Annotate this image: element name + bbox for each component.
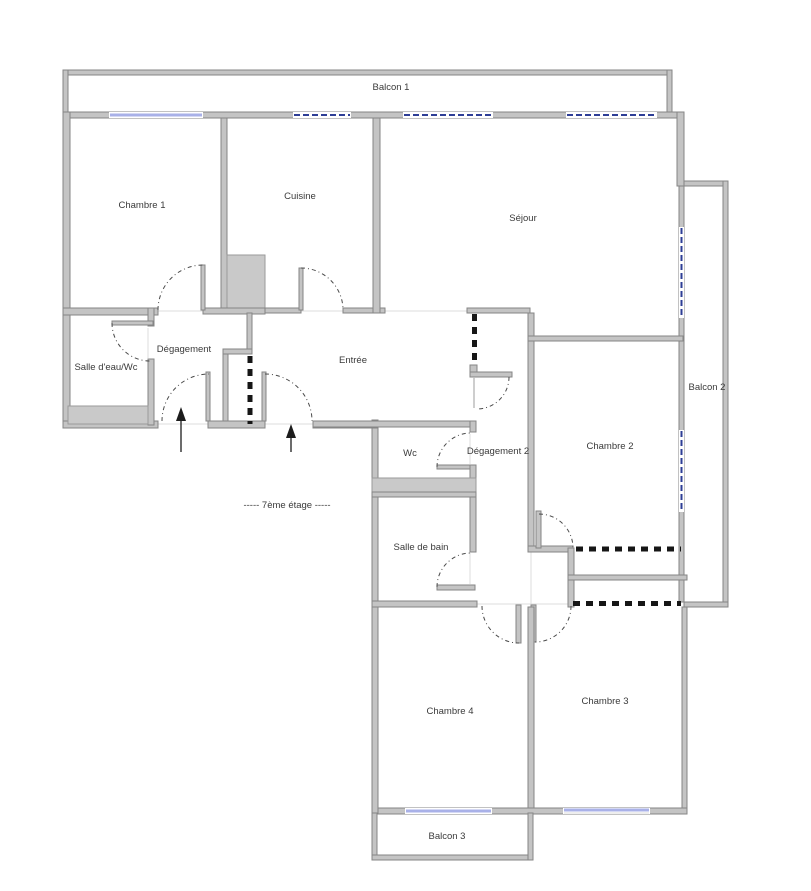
wall-left: [63, 112, 70, 428]
wall-chambre2-bottom: [528, 546, 573, 552]
wall-sdb-top: [372, 492, 476, 497]
shelf-strip: [372, 478, 476, 492]
label-chambre-4: Chambre 4: [427, 706, 474, 717]
wall-entry-bottom-b: [208, 421, 265, 428]
door-cuisine-panel: [299, 268, 303, 310]
label-sejour: Séjour: [509, 213, 536, 224]
shower-tray: [68, 406, 148, 424]
room-degagement-2: [476, 313, 528, 607]
label-salle-eau-wc: Salle d'eau/Wc: [74, 362, 137, 373]
label-entree: Entrée: [339, 355, 367, 366]
label-floor: ----- 7ème étage -----: [243, 500, 330, 511]
wall-chambre1-bottom-a: [63, 308, 158, 315]
label-balcon-1: Balcon 1: [373, 82, 410, 93]
wall-chambre2-left: [528, 313, 534, 548]
wall-balcon2-top: [684, 181, 728, 186]
wall-deg2-door-top: [470, 372, 512, 377]
floor-plan-canvas: Balcon 1 Chambre 1 Cuisine Séjour Salle …: [0, 0, 811, 891]
wall-balcon2-right: [723, 181, 728, 607]
label-wc: Wc: [403, 448, 417, 459]
label-degagement-2: Dégagement 2: [467, 446, 529, 457]
door-chambre2-panel: [536, 511, 541, 548]
door-chambre4-panel: [516, 605, 521, 643]
wall-closet-right: [247, 313, 252, 353]
door-sdb-panel: [437, 585, 475, 590]
wall-closet-top: [223, 349, 252, 354]
wall-sejour-bottom: [467, 308, 530, 313]
wall-cuisine-sejour: [373, 118, 380, 313]
room-zones: [68, 75, 723, 855]
wall-balcon1-top: [63, 70, 672, 75]
room-wc: [378, 427, 470, 478]
wall-right-upper: [677, 112, 684, 186]
wall-balcon2-bottom: [684, 602, 728, 607]
floor-plan-drawing: Balcon 1 Chambre 1 Cuisine Séjour Salle …: [0, 0, 811, 891]
label-degagement: Dégagement: [157, 344, 212, 355]
wall-chambre1-bottom-b: [203, 308, 265, 314]
wall-cuisine-bottom-a: [265, 308, 301, 313]
label-balcon-2: Balcon 2: [689, 382, 726, 393]
duct-shaft: [227, 255, 265, 308]
wall-chambre34-divider: [528, 607, 534, 808]
door-wc-panel: [437, 465, 475, 469]
label-chambre-1: Chambre 1: [119, 200, 166, 211]
wall-deg2-stub: [470, 365, 477, 372]
room-chambre-3: [534, 607, 682, 808]
door-entrance-right-panel: [262, 372, 266, 421]
wall-chambre3-right: [682, 607, 687, 813]
wall-balcon3-bottom: [372, 855, 533, 860]
label-chambre-2: Chambre 2: [587, 441, 634, 452]
wall-chambre2-top: [528, 336, 683, 341]
room-chambre-1: [70, 118, 221, 308]
wall-salledeau-right-b: [148, 359, 154, 425]
label-balcon-3: Balcon 3: [429, 831, 466, 842]
label-salle-de-bain: Salle de bain: [394, 542, 449, 553]
entrance-arrow-right-head: [286, 424, 296, 438]
room-sejour: [380, 118, 679, 336]
room-balcon-1: [68, 75, 667, 112]
wall-balcon1-left: [63, 70, 68, 113]
label-cuisine: Cuisine: [284, 191, 316, 202]
wall-closet-left: [223, 354, 228, 421]
wall-wc-top: [313, 421, 476, 427]
wall-strip: [568, 575, 687, 580]
wall-balcon1-right: [667, 70, 672, 113]
room-entree: [253, 313, 473, 421]
wall-wc-right-stub: [470, 421, 476, 432]
wall-chambre4-top: [372, 601, 477, 607]
wall-chambre1-cuisine: [221, 118, 227, 310]
wall-balcon3-right: [528, 813, 533, 860]
room-degagement: [154, 315, 248, 421]
wall-balcon3-left: [372, 813, 377, 860]
door-chambre1-panel: [201, 265, 205, 310]
label-chambre-3: Chambre 3: [582, 696, 629, 707]
door-salledeau-panel: [112, 321, 153, 325]
room-balcon-2: [684, 186, 723, 602]
door-entrance-left-panel: [206, 372, 210, 421]
